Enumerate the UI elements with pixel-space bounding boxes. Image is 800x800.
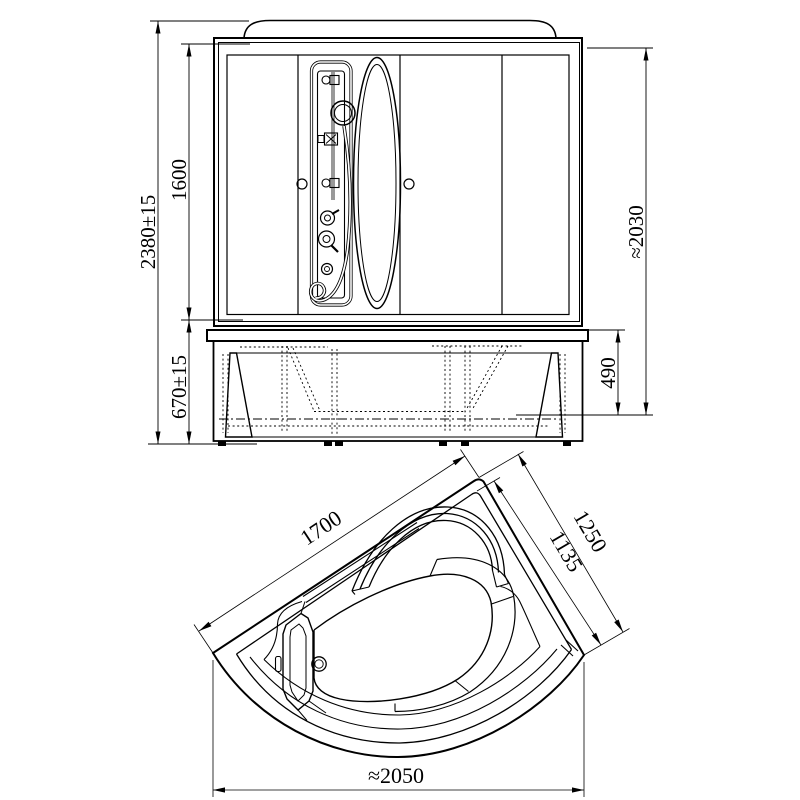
cabin-roof (244, 21, 556, 39)
drawing-page: 2380±15 1600 670±15 ≈2030 490 (0, 0, 800, 800)
dim-glass-section-height: 1600 (167, 159, 191, 201)
bathing-well (314, 574, 492, 701)
dim-overall-width: ≈2050 (368, 763, 424, 788)
door-handle-right (404, 179, 414, 189)
dim-total-height: 2380±15 (136, 195, 160, 270)
dim-inner-height: ≈2030 (624, 205, 648, 259)
bath-hidden-lines (219, 346, 565, 435)
bath-leg-left (226, 353, 253, 437)
bath-rim (207, 330, 588, 341)
oval-back-panel (354, 58, 401, 309)
overflow-tab (276, 657, 282, 672)
diverter-valve (318, 133, 338, 145)
dim-bath-depth: 490 (596, 357, 620, 389)
dim-bath-height: 670±15 (167, 355, 191, 419)
dim-left-edge: 1700 (296, 505, 346, 550)
armrest-band (395, 558, 515, 712)
mixer-knob-lower (319, 231, 339, 252)
bath-leg-right (536, 353, 563, 437)
rail-bracket-mid (330, 179, 339, 188)
apron-arc-2 (250, 649, 557, 729)
plan-view (213, 479, 584, 757)
seat (283, 602, 326, 721)
cabin-frame-mid (219, 43, 580, 322)
technical-drawing: 2380±15 1600 670±15 ≈2030 490 (0, 0, 800, 800)
right-corner-facets (561, 640, 578, 656)
rail-bracket-top (330, 76, 339, 85)
front-view (207, 21, 588, 447)
mixer-knob-upper (321, 210, 340, 225)
cabin-frame-outer (214, 38, 582, 326)
hose-hook (322, 264, 333, 275)
headrest (352, 507, 509, 595)
shower-column (311, 62, 355, 305)
dimension-arrows (156, 21, 649, 444)
oval-back-panel-inner (358, 65, 396, 302)
bath-feet (218, 442, 571, 447)
cabin-glass-area (227, 55, 569, 315)
